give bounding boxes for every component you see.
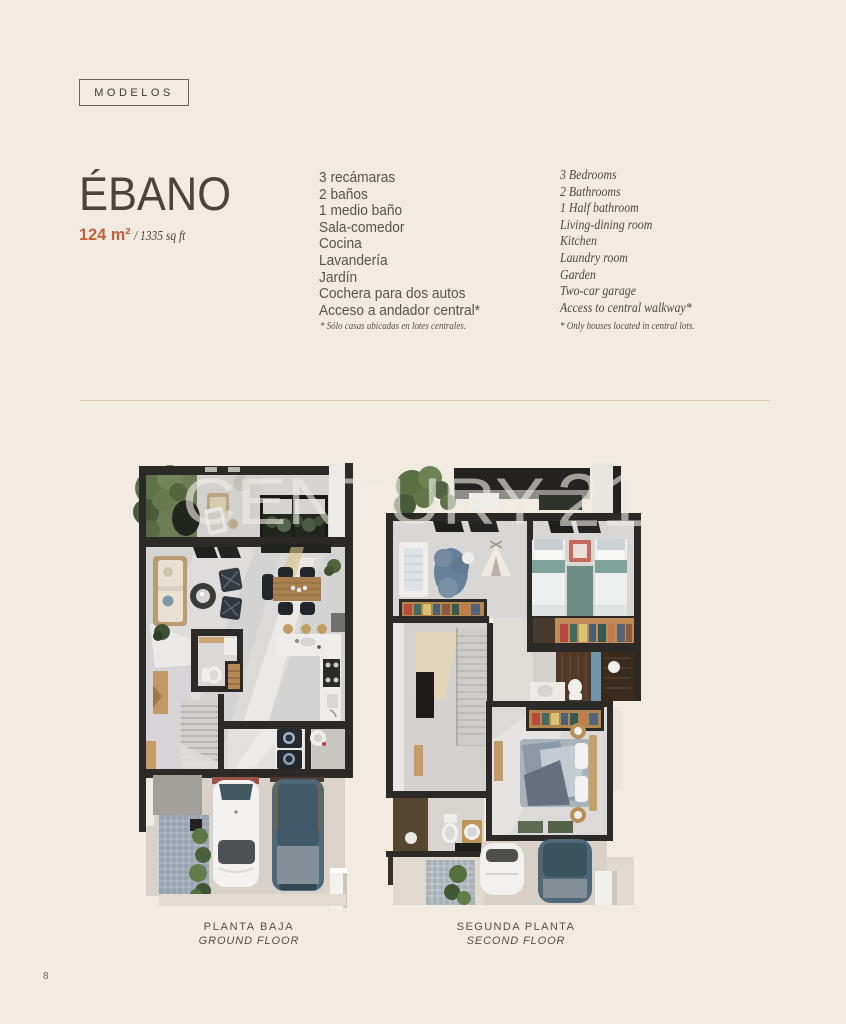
svg-text:CENTURY: CENTURY xyxy=(182,464,545,538)
svg-text:21: 21 xyxy=(556,458,646,542)
